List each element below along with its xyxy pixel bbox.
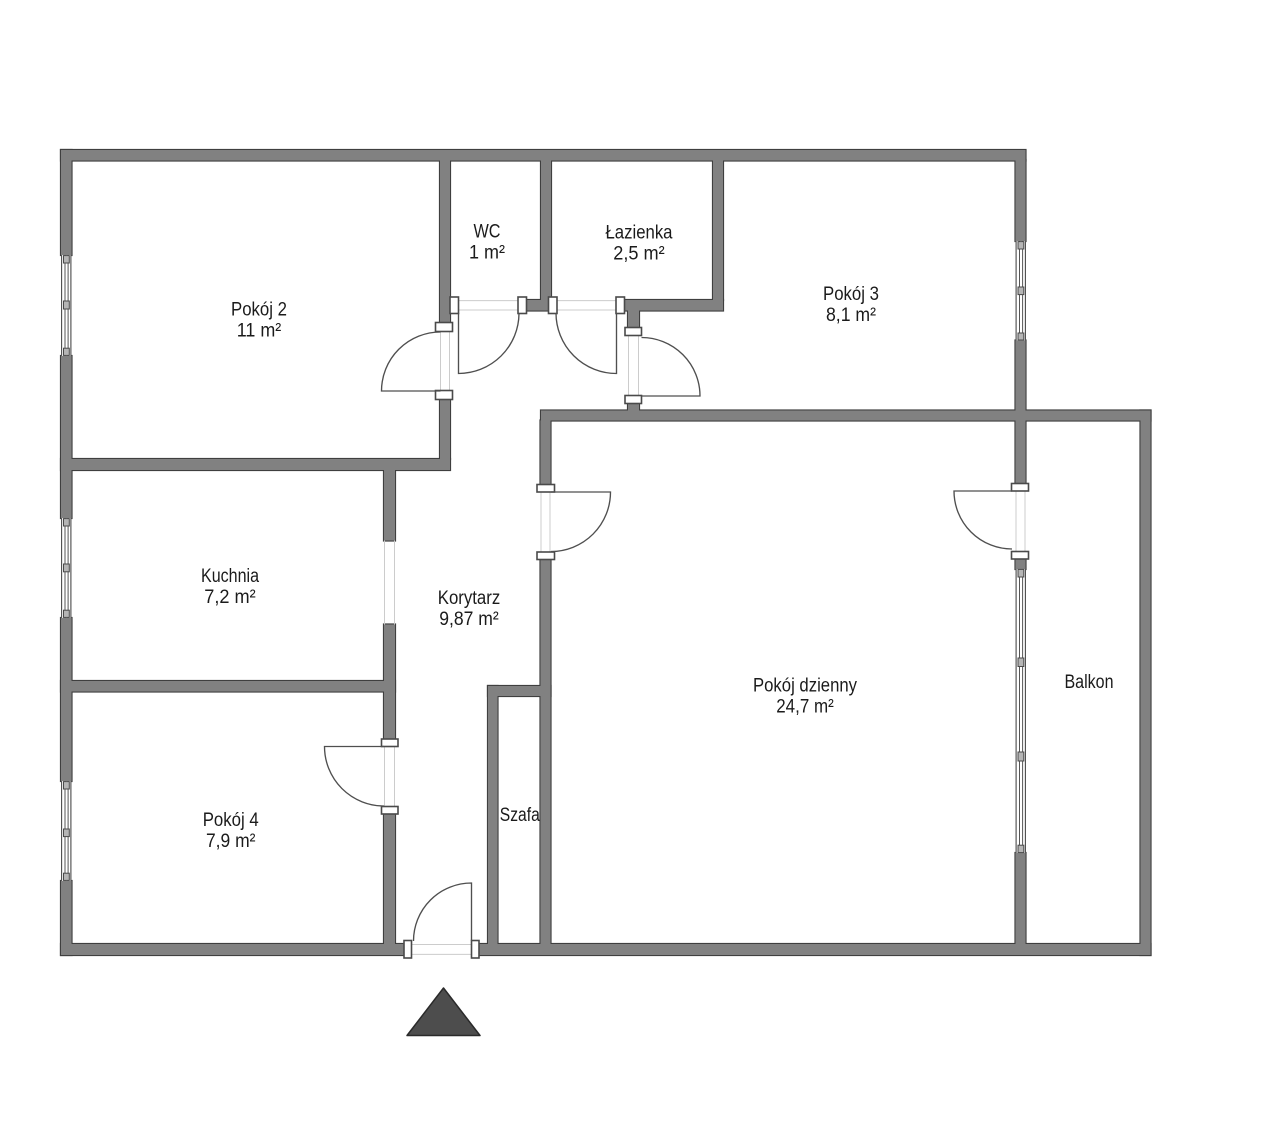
svg-text:1 m²: 1 m² [469, 243, 505, 264]
svg-text:Pokój 2: Pokój 2 [231, 300, 287, 321]
svg-text:7,9 m²: 7,9 m² [206, 831, 256, 852]
svg-text:7,2 m²: 7,2 m² [204, 587, 256, 608]
svg-text:Łazienka: Łazienka [606, 223, 673, 244]
svg-text:WC: WC [474, 222, 501, 243]
svg-text:11 m²: 11 m² [237, 321, 282, 342]
svg-text:8,1 m²: 8,1 m² [826, 305, 876, 326]
svg-text:2,5 m²: 2,5 m² [613, 244, 665, 265]
svg-text:Balkon: Balkon [1065, 672, 1114, 693]
svg-text:Pokój dzienny: Pokój dzienny [753, 676, 857, 697]
svg-text:Szafa: Szafa [500, 805, 540, 826]
svg-text:Pokój 3: Pokój 3 [823, 284, 879, 305]
svg-text:Korytarz: Korytarz [438, 588, 501, 609]
svg-text:Kuchnia: Kuchnia [201, 566, 259, 587]
svg-text:24,7 m²: 24,7 m² [776, 697, 834, 718]
svg-text:9,87 m²: 9,87 m² [439, 609, 499, 630]
svg-text:Pokój 4: Pokój 4 [203, 810, 259, 831]
